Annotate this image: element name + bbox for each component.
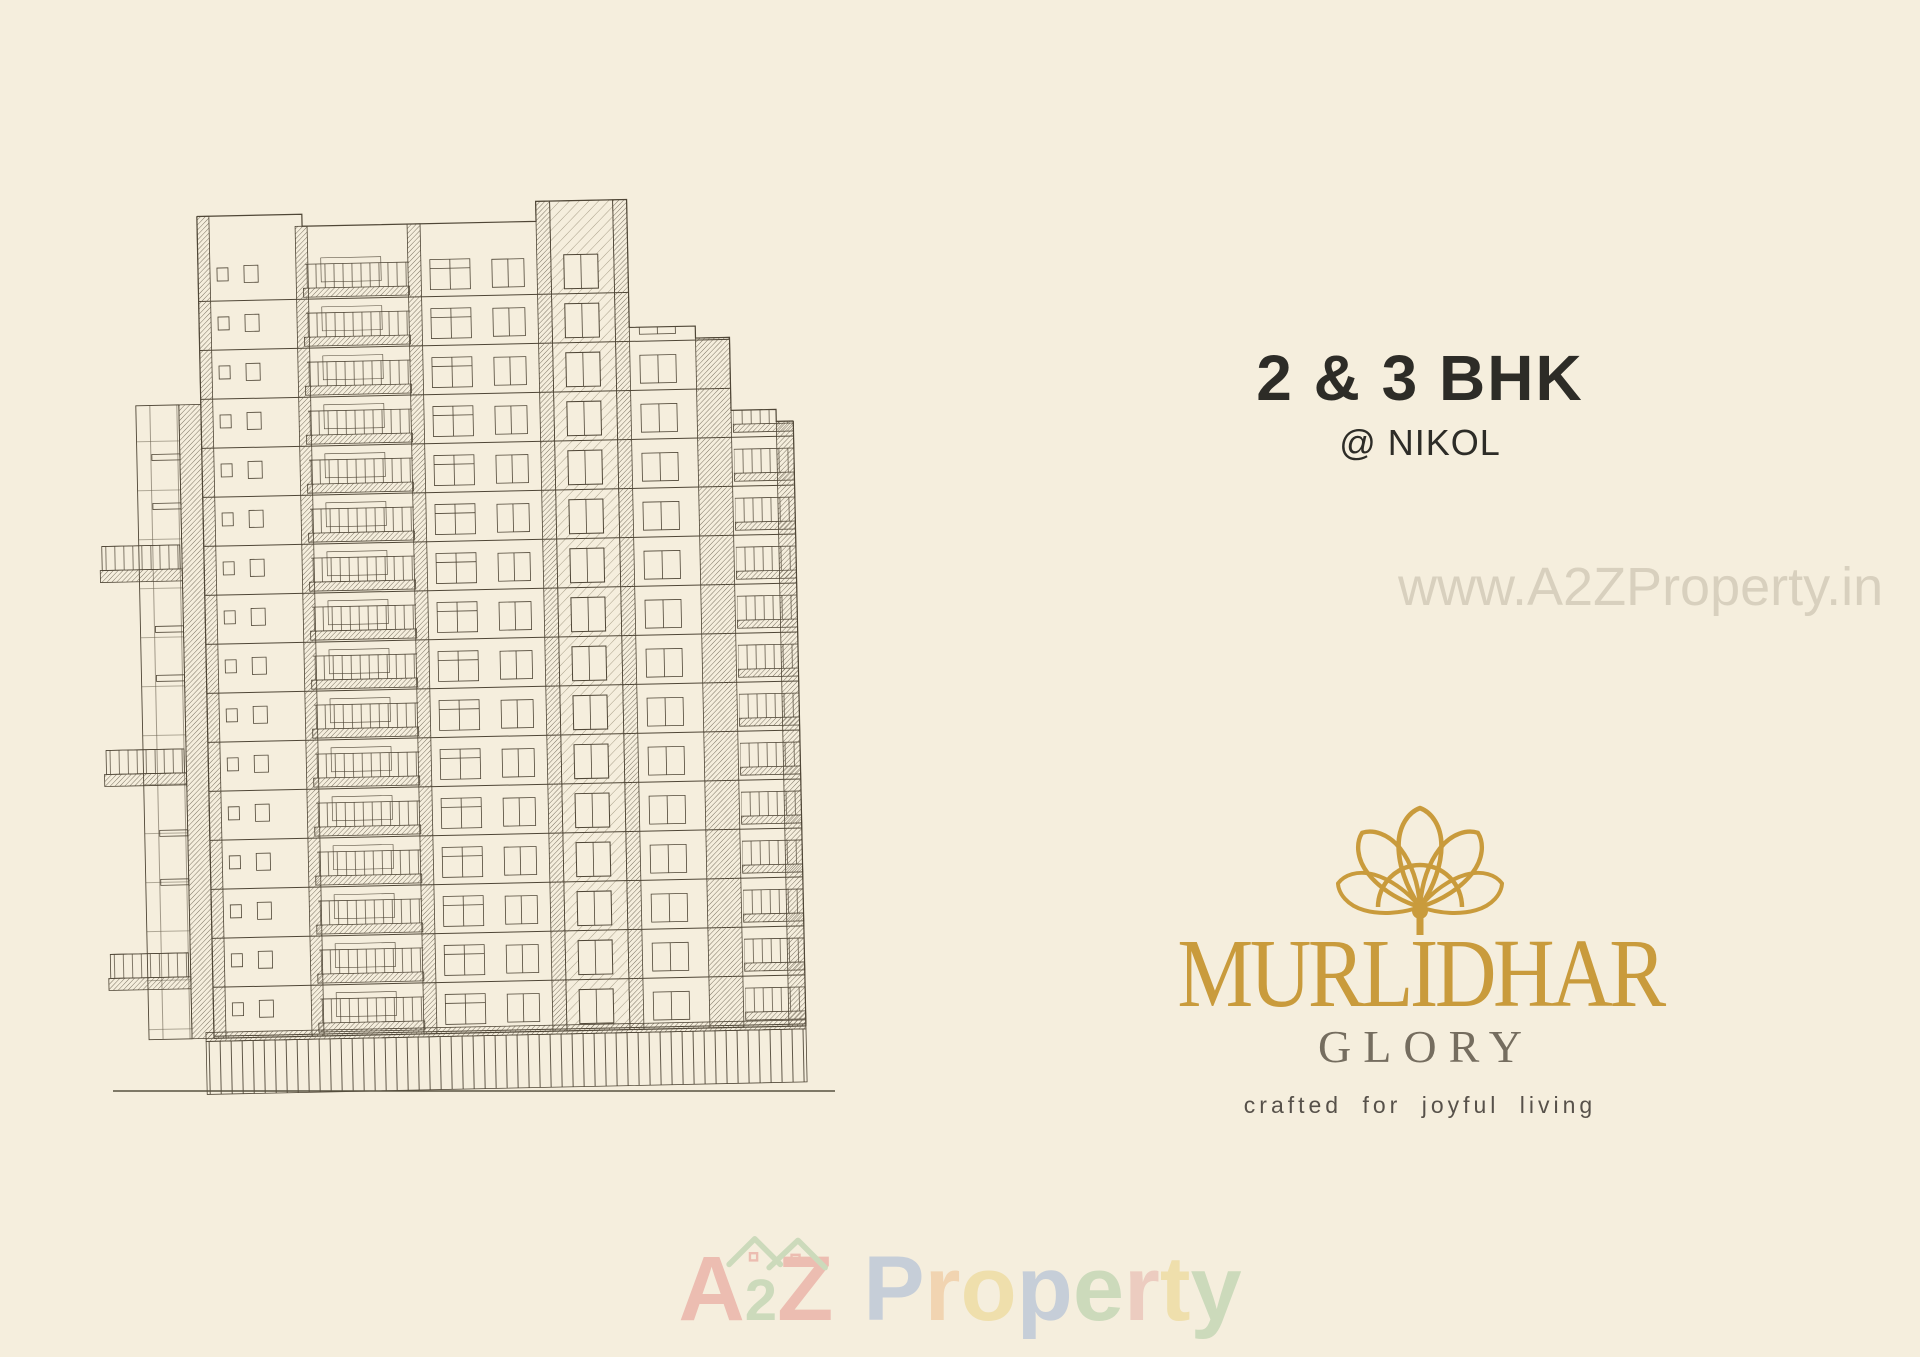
watermark-letter: t — [1160, 1243, 1191, 1335]
brand-subname: GLORY — [1140, 1024, 1700, 1070]
watermark-word-property: Property — [863, 1243, 1241, 1335]
watermark-letter: r — [925, 1243, 961, 1335]
brand-name: MURLIDHAR — [1174, 929, 1667, 1018]
website-watermark: www.A2ZProperty.in — [1398, 556, 1883, 618]
watermark-letter: y — [1190, 1243, 1241, 1335]
a2z-property-watermark: A2ZProperty — [678, 1243, 1241, 1335]
watermark-letter: r — [1124, 1243, 1160, 1335]
hero-text-block: 2 & 3 BHK @ NIKOL — [1140, 346, 1700, 464]
brand-logo-block: MURLIDHAR GLORY crafted for joyful livin… — [1140, 795, 1700, 1119]
watermark-word-a2z: A2Z — [678, 1243, 833, 1335]
poster-canvas: { "canvas": { "background": "#f5eedd", "… — [0, 0, 1920, 1357]
brand-tagline: crafted for joyful living — [1140, 1092, 1700, 1119]
roof-icon — [724, 1229, 828, 1271]
watermark-letter: o — [960, 1243, 1016, 1335]
location-line: @ NIKOL — [1140, 422, 1700, 464]
watermark-letter: p — [1017, 1243, 1073, 1335]
watermark-letter: 2 — [745, 1272, 777, 1330]
headline-bhk: 2 & 3 BHK — [1140, 346, 1700, 410]
watermark-letter: P — [863, 1243, 924, 1335]
building-elevation-wireframe — [95, 190, 840, 1105]
watermark-letter: e — [1073, 1243, 1124, 1335]
building-drawing-svg — [95, 190, 840, 1105]
lotus-flute-icon — [1330, 795, 1510, 935]
